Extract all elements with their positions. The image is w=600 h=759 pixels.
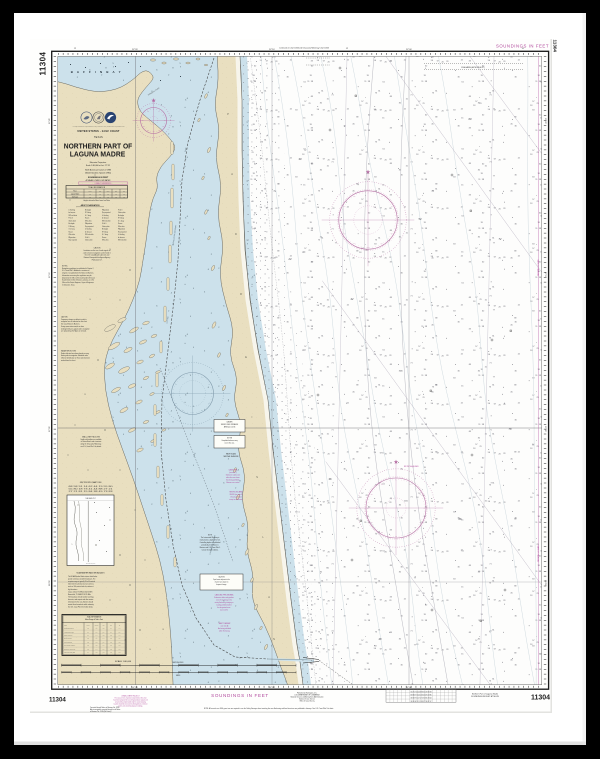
svg-text:Whis whis: Whis whis bbox=[69, 234, 76, 236]
svg-text:68 58 91 14 62 44 19 55 80: 68 58 91 14 62 44 19 55 80 bbox=[69, 486, 113, 488]
svg-text:TEXAS: TEXAS bbox=[94, 136, 103, 139]
svg-text:SOUNDINGS IN FEET AT MLLW: SOUNDINGS IN FEET AT MLLW bbox=[471, 695, 499, 698]
svg-text:SCALE 1:80,000: SCALE 1:80,000 bbox=[115, 660, 132, 663]
svg-text:SAFETY FAIRWAY: SAFETY FAIRWAY bbox=[537, 259, 540, 277]
svg-text:Whis whis: Whis whis bbox=[85, 220, 92, 222]
svg-text:Racon: Racon bbox=[102, 237, 106, 239]
svg-text:5: 5 bbox=[72, 544, 73, 546]
svg-text:28: 28 bbox=[79, 159, 81, 161]
svg-text:N: N bbox=[273, 638, 275, 641]
svg-text:210: 210 bbox=[147, 130, 149, 132]
svg-text:AIDS TO NAVIGATION: AIDS TO NAVIGATION bbox=[81, 204, 100, 207]
svg-text:97°20': 97°20' bbox=[132, 687, 138, 689]
svg-text:SAFETY FAIRWAY: SAFETY FAIRWAY bbox=[537, 545, 540, 563]
svg-text:210: 210 bbox=[381, 532, 383, 534]
svg-text:R N buoy: R N buoy bbox=[69, 226, 75, 228]
svg-text:Yarborough Pass: Yarborough Pass bbox=[64, 631, 74, 633]
svg-text:Northern Part of Laguna Madre: Northern Part of Laguna Madre bbox=[472, 692, 498, 695]
svg-text:Middle Ground: Middle Ground bbox=[64, 635, 73, 637]
svg-text:150: 150 bbox=[158, 130, 160, 132]
svg-text:270: 270 bbox=[173, 393, 175, 395]
svg-text:330: 330 bbox=[353, 196, 355, 198]
svg-text:270: 270 bbox=[367, 508, 369, 510]
svg-text:El Toro Island: El Toro Island bbox=[64, 638, 72, 640]
svg-text:SOUNDINGS IN FEET: SOUNDINGS IN FEET bbox=[88, 177, 109, 179]
svg-text:27°20': 27°20' bbox=[49, 118, 51, 124]
svg-text:150: 150 bbox=[201, 409, 203, 411]
svg-text:NORTHERN PART OF: NORTHERN PART OF bbox=[64, 144, 133, 151]
svg-text:Racon: Racon bbox=[85, 218, 89, 220]
svg-text:97°00': 97°00' bbox=[406, 49, 412, 51]
svg-text:210: 210 bbox=[182, 409, 184, 411]
svg-text:150: 150 bbox=[409, 532, 411, 534]
svg-text:240: 240 bbox=[343, 233, 345, 235]
svg-text:300: 300 bbox=[143, 115, 145, 117]
svg-text:11304: 11304 bbox=[531, 694, 550, 701]
svg-text:TIDAL INFORMATION: TIDAL INFORMATION bbox=[88, 186, 106, 189]
svg-text:97°10': 97°10' bbox=[269, 49, 275, 51]
svg-text:240: 240 bbox=[143, 126, 145, 128]
svg-text:180: 180 bbox=[153, 131, 155, 133]
svg-text:Submarine cables and pipelines: Submarine cables and pipelines bbox=[214, 597, 234, 599]
svg-text:26: 26 bbox=[109, 249, 111, 251]
svg-text:North American Datum of 1983: North American Datum of 1983 bbox=[85, 169, 111, 172]
svg-text:Mn: Mn bbox=[103, 625, 105, 627]
svg-text:10: 10 bbox=[149, 649, 151, 651]
svg-text:Whis whis: Whis whis bbox=[102, 240, 109, 242]
svg-text:27 21 81 15 84 38 49 73 83: 27 21 81 15 84 38 49 73 83 bbox=[69, 491, 113, 493]
svg-text:Min: Min bbox=[123, 191, 125, 193]
svg-text:300: 300 bbox=[343, 206, 345, 208]
svg-text:SOUNDINGS IN FEET: SOUNDINGS IN FEET bbox=[211, 693, 269, 698]
svg-text:11304: 11304 bbox=[39, 52, 48, 76]
svg-text:11: 11 bbox=[149, 599, 151, 601]
svg-text:R: R bbox=[240, 293, 242, 296]
svg-text:11304: 11304 bbox=[553, 39, 558, 52]
svg-text:Whis whis: Whis whis bbox=[118, 226, 125, 228]
svg-text:330: 330 bbox=[381, 483, 383, 485]
svg-text:270: 270 bbox=[340, 220, 342, 222]
svg-text:AT MEAN LOWER LOW WATER: AT MEAN LOWER LOW WATER bbox=[86, 179, 111, 182]
svg-text:bn beacon: bn beacon bbox=[69, 212, 76, 214]
svg-text:180: 180 bbox=[395, 536, 397, 538]
svg-text:G C buoy: G C buoy bbox=[85, 215, 91, 217]
svg-text:27°20': 27°20' bbox=[544, 118, 546, 124]
svg-text:150: 150 bbox=[381, 243, 383, 245]
svg-text:G C buoy: G C buoy bbox=[69, 229, 75, 231]
svg-text:240: 240 bbox=[175, 403, 177, 405]
svg-text:270: 270 bbox=[142, 120, 144, 122]
svg-text:29: 29 bbox=[84, 394, 86, 396]
svg-text:B A F F I N B A Y: B A F F I N B A Y bbox=[71, 70, 123, 74]
svg-text:R N buoy: R N buoy bbox=[102, 231, 108, 233]
svg-text:(World Geodetic System 1984): (World Geodetic System 1984) bbox=[85, 171, 111, 174]
svg-text:26°50': 26°50' bbox=[544, 580, 546, 586]
svg-text:NOTE: NOTE bbox=[208, 535, 212, 537]
svg-text:27°10': 27°10' bbox=[49, 272, 51, 278]
svg-text:NOTE B: NOTE B bbox=[227, 438, 232, 440]
svg-text:D: D bbox=[235, 233, 237, 236]
svg-text:27°10': 27°10' bbox=[544, 272, 546, 278]
svg-text:26°50': 26°50' bbox=[49, 580, 51, 586]
svg-text:bn beacon: bn beacon bbox=[118, 237, 125, 239]
svg-text:27°00': 27°00' bbox=[49, 426, 51, 432]
svg-text:Brownsville, TX KHB-33: Brownsville, TX KHB-33 162.55 MHz bbox=[68, 594, 91, 596]
svg-text:Scale 1:80,000 at Lat. 27°15': Scale 1:80,000 at Lat. 27°15' bbox=[86, 164, 111, 167]
svg-text:18: 18 bbox=[162, 629, 164, 631]
svg-text:97°10': 97°10' bbox=[269, 687, 275, 689]
svg-text:210: 210 bbox=[353, 243, 355, 245]
svg-text:330: 330 bbox=[182, 377, 184, 379]
svg-text:120: 120 bbox=[391, 233, 393, 235]
svg-text:Racon: Racon bbox=[69, 231, 73, 233]
svg-text:G C buoy: G C buoy bbox=[102, 234, 108, 236]
svg-text:MTL: MTL bbox=[99, 191, 102, 193]
svg-text:Laguna Madre: Laguna Madre bbox=[71, 194, 80, 196]
svg-text:180: 180 bbox=[367, 247, 369, 249]
svg-text:Rincon de San Jose: Rincon de San Jose bbox=[64, 648, 75, 650]
svg-text:180: 180 bbox=[192, 412, 194, 414]
svg-text:UNITED STATES - GULF COAST: UNITED STATES - GULF COAST bbox=[77, 130, 120, 133]
svg-text:240: 240 bbox=[371, 522, 373, 524]
svg-text:Bn daybn: Bn daybn bbox=[118, 215, 124, 217]
svg-text:LAGUNA MADRE: LAGUNA MADRE bbox=[70, 152, 126, 159]
svg-text:59 27 17 40 40 89 83 51 39 69: 59 27 17 40 40 89 83 51 39 69 83 bbox=[411, 691, 432, 693]
svg-text:Bn daybn: Bn daybn bbox=[102, 229, 108, 231]
svg-text:Bn daybn: Bn daybn bbox=[69, 223, 75, 225]
svg-text:G C buoy: G C buoy bbox=[118, 220, 124, 222]
svg-text:300: 300 bbox=[371, 494, 373, 496]
svg-text:bn beacon: bn beacon bbox=[102, 218, 109, 220]
svg-text:R N buoy: R N buoy bbox=[118, 218, 124, 220]
svg-text:120: 120 bbox=[208, 403, 210, 405]
svg-text:300: 300 bbox=[175, 384, 177, 386]
svg-text:R N buoy: R N buoy bbox=[85, 212, 91, 214]
svg-text:27°00': 27°00' bbox=[544, 426, 546, 432]
svg-text:69 83 67 70 43 23 36 56 76 33: 69 83 67 70 43 23 36 56 76 33 96 bbox=[411, 695, 432, 697]
svg-text:10: 10 bbox=[89, 299, 91, 301]
svg-text:Racon: Racon bbox=[118, 223, 122, 225]
svg-text:97°00': 97°00' bbox=[406, 687, 412, 689]
svg-text:Continued on Chart 11306 and I: Continued on Chart 11306 and Intracoasta… bbox=[279, 47, 329, 50]
svg-text:24: 24 bbox=[288, 257, 292, 261]
svg-text:93 24 80 79 11 19 83 77 80 52: 93 24 80 79 11 19 83 77 80 52 97 bbox=[411, 701, 432, 703]
svg-text:bn beacon: bn beacon bbox=[85, 231, 92, 233]
svg-text:55 80 18 73 41 44 88 27 21: 55 80 18 73 41 44 88 27 21 bbox=[69, 488, 113, 490]
svg-text:Bn daybn: Bn daybn bbox=[85, 209, 91, 211]
svg-text:Place: Place bbox=[64, 625, 67, 627]
svg-text:97°20': 97°20' bbox=[132, 49, 138, 51]
svg-text:120: 120 bbox=[162, 126, 164, 128]
svg-text:11304: 11304 bbox=[49, 696, 66, 703]
svg-text:33 96 97 31 27 47 59 58 35 93: 33 96 97 31 27 47 59 58 35 93 24 bbox=[411, 698, 432, 700]
svg-text:330: 330 bbox=[147, 110, 149, 112]
svg-text:Place: Place bbox=[73, 191, 77, 193]
svg-text:120: 120 bbox=[419, 522, 421, 524]
svg-text:Mercator Projection: Mercator Projection bbox=[90, 161, 106, 164]
